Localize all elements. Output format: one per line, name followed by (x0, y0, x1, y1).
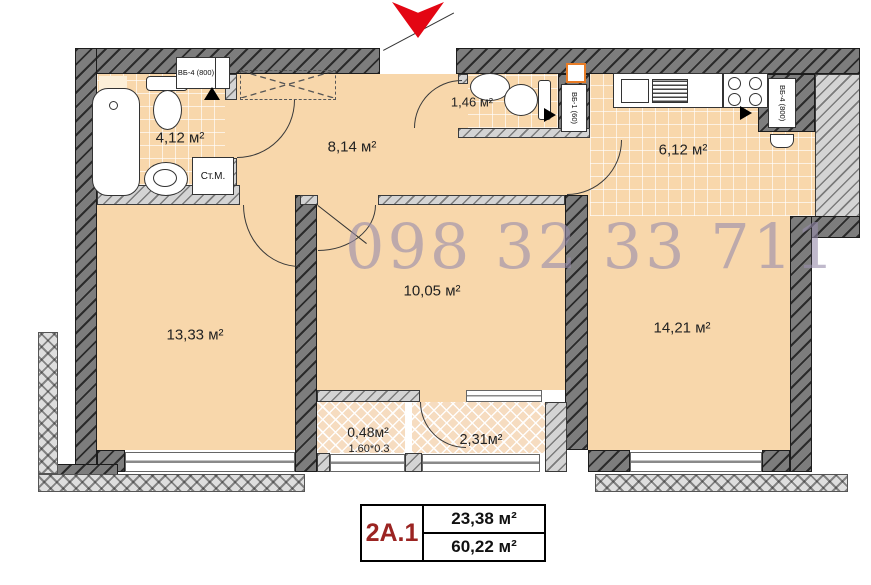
parapet-bottom-left (38, 474, 305, 492)
shaft-marker (566, 63, 586, 83)
bathtub-drain-icon (109, 101, 118, 110)
sink-basin-icon (153, 169, 177, 187)
wall-hall-bottom-seg2 (378, 195, 565, 205)
label-living-left-area: 13,33 м² (166, 327, 223, 344)
label-living-right-area: 14,21 м² (653, 320, 710, 337)
label-hallway-area: 8,14 м² (328, 139, 377, 156)
toilet-bowl-wc (504, 84, 538, 116)
label-bathroom-area: 4,12 м² (156, 130, 205, 147)
vent-block-kitchen: ВБ-4 (800) (768, 78, 796, 128)
parapet-bottom-right (595, 474, 848, 492)
wall-top-right (456, 48, 860, 74)
label-wc-area: 1,46 м² (451, 95, 493, 110)
label-kitchen-area: 6,12 м² (659, 142, 708, 159)
kitchen-sink (621, 79, 649, 103)
label-living-middle-area: 10,05 м² (403, 283, 460, 300)
vent-triangle-wc-icon (544, 108, 556, 122)
vent-triangle-kitchen-icon (740, 106, 752, 120)
vent-block-kitchen-label: ВБ-4 (800) (778, 85, 786, 121)
floor-plan: Ст.М. ВБ-4 (800) ВБ-1 (60) ВБ-4 (800) 4,… (0, 0, 871, 585)
wardrobe-cross-icon (241, 71, 334, 98)
area-top-value: 23,38 м² (424, 506, 544, 534)
window-living-left (125, 452, 295, 472)
washing-machine: Ст.М. (192, 157, 234, 195)
window-balcony-small (330, 454, 405, 472)
area-bottom-value: 60,22 м² (424, 534, 544, 560)
kitchen-vent-fixture (770, 134, 794, 148)
balcony-pier-right (545, 402, 567, 472)
label-balcony-large-area: 2,31м² (459, 432, 502, 448)
vent-triangle-bathroom-icon (204, 87, 220, 100)
vent-block-wc-label: ВБ-1 (60) (570, 92, 578, 124)
window-balcony-large (422, 454, 540, 472)
label-balcony-small-dims: 1.60*0.3 (349, 443, 390, 455)
balcony-pier-left (317, 453, 330, 472)
balcony-pier-mid (405, 453, 422, 472)
stove (723, 73, 768, 108)
entrance-arrow-icon (392, 2, 444, 38)
bathroom-door-gap-floor (225, 100, 237, 158)
balcony-door-gap-floor (420, 390, 466, 402)
info-table-areas: 23,38 м² 60,22 м² (424, 506, 544, 560)
info-table: 2А.1 23,38 м² 60,22 м² (360, 504, 546, 562)
wall-bottom-right-seg1 (588, 450, 630, 472)
burner-icon (749, 77, 762, 90)
wall-balcony-top (317, 390, 420, 402)
label-balcony-small-area: 0,48м² (347, 424, 389, 440)
washing-machine-label: Ст.М. (201, 171, 226, 182)
bathtub (92, 88, 140, 196)
sink-bathroom (144, 162, 188, 196)
window-balcony-wall (466, 390, 542, 402)
unit-label: 2А.1 (362, 506, 424, 560)
window-living-right (630, 452, 762, 472)
wardrobe (240, 70, 336, 100)
burner-icon (728, 77, 741, 90)
watermark-phone: 098 32 33 711 (345, 210, 838, 283)
toilet-bowl-bathroom (153, 90, 182, 130)
burner-icon (728, 93, 741, 106)
kitchen-counter (613, 73, 723, 108)
vent-block-bathroom-label: ВБ-4 (800) (177, 58, 215, 88)
vent-block-wc: ВБ-1 (60) (561, 84, 587, 132)
wall-hall-bottom-seg1 (300, 195, 318, 205)
parapet-left-vertical (38, 332, 58, 474)
vent-block-bathroom: ВБ-4 (800) (176, 57, 230, 89)
vent-block-bathroom-cell (215, 58, 229, 88)
wall-bottom-right-seg2 (762, 450, 790, 472)
burner-icon (749, 93, 762, 106)
kitchen-drainer (652, 79, 688, 103)
